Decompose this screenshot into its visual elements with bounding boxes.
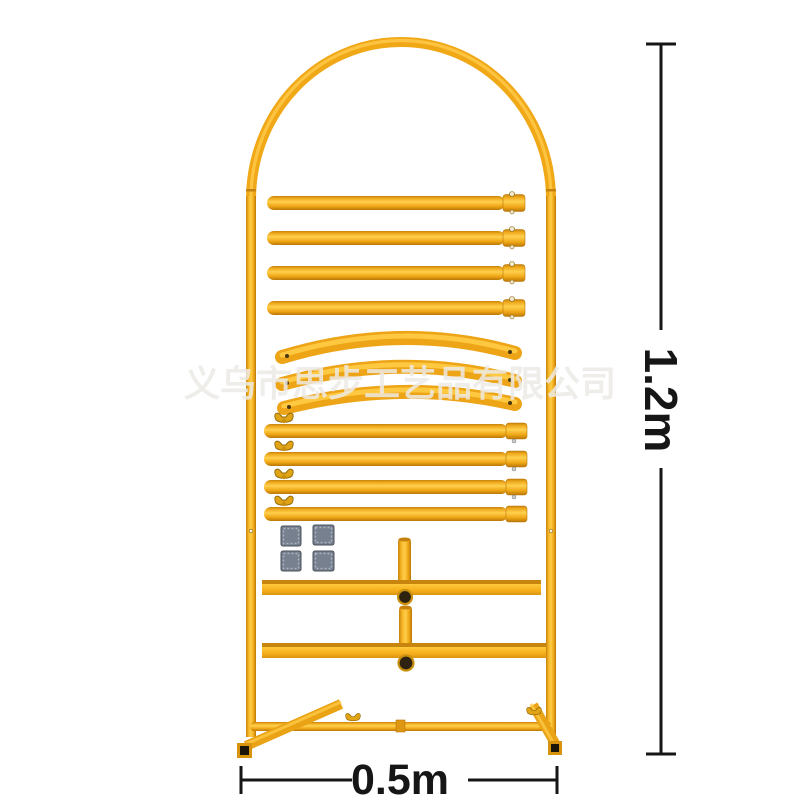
product-photo: 义乌市思步工艺品有限公司 1.2m 0.5m — [0, 0, 800, 800]
tube-pin-bottom — [510, 280, 514, 284]
t1-tube-opening — [398, 590, 412, 604]
straight-tubes — [267, 192, 525, 320]
wing-nut-hub — [282, 502, 286, 506]
gray-clip-2 — [313, 525, 334, 545]
product-illustration: 义乌市思步工艺品有限公司 1.2m 0.5m — [0, 0, 800, 800]
frame-left-leg — [246, 196, 256, 737]
tube-pin-bottom — [510, 245, 514, 249]
gray-clip-3 — [281, 551, 301, 571]
gray-clip-4 — [313, 551, 334, 571]
height-dimension-label: 1.2m — [635, 348, 687, 453]
tube-pin-top — [510, 227, 515, 232]
left-foot-end-opening — [240, 746, 249, 755]
straight-tube-4 — [267, 297, 525, 320]
straight-tube-1 — [267, 192, 525, 215]
frame-right-leg — [546, 196, 556, 737]
tube-pin-top — [510, 297, 515, 302]
left-leg-screw — [249, 529, 253, 533]
gray-clip-1 — [281, 526, 301, 546]
tube-pin-top — [510, 192, 515, 197]
right-foot-end-opening — [551, 744, 559, 752]
crossbar-center-joint — [396, 720, 405, 732]
wingnut-tube-4 — [264, 496, 527, 522]
wingnut-tube-2 — [264, 441, 527, 471]
wingnut-tube-3 — [264, 469, 527, 499]
straight-tube-3 — [267, 262, 525, 285]
tube-pin-top — [510, 262, 515, 267]
watermark-text: 义乌市思步工艺品有限公司 — [184, 364, 616, 405]
right-leg-screw — [549, 529, 553, 533]
wingnut-tube-1 — [264, 413, 527, 443]
wing-nut-hub — [282, 419, 286, 423]
t2-tube-opening — [399, 656, 414, 671]
arch-top-highlight — [251, 41, 551, 211]
left-foot-wing-nut — [346, 714, 361, 721]
gray-clips — [281, 525, 334, 571]
tube-pin-bottom — [510, 210, 514, 214]
tube-pin-bottom — [510, 315, 514, 319]
tube-pin — [512, 495, 516, 499]
right-leg-seam — [546, 189, 556, 192]
wing-nut-hub — [282, 475, 286, 479]
tube-pin — [512, 467, 516, 471]
t-crossbar-assembly-1 — [262, 538, 541, 605]
left-leg-seam — [246, 189, 256, 192]
t-crossbar-assembly-2 — [262, 606, 546, 671]
arch-top-tube — [251, 42, 551, 212]
width-dimension-label: 0.5m — [351, 756, 449, 800]
straight-tube-2 — [267, 227, 525, 250]
wing-nut-hub — [282, 447, 286, 451]
wingnut-tubes — [264, 413, 527, 522]
curved-tube-1 — [282, 336, 515, 358]
tube-pin — [512, 439, 516, 443]
